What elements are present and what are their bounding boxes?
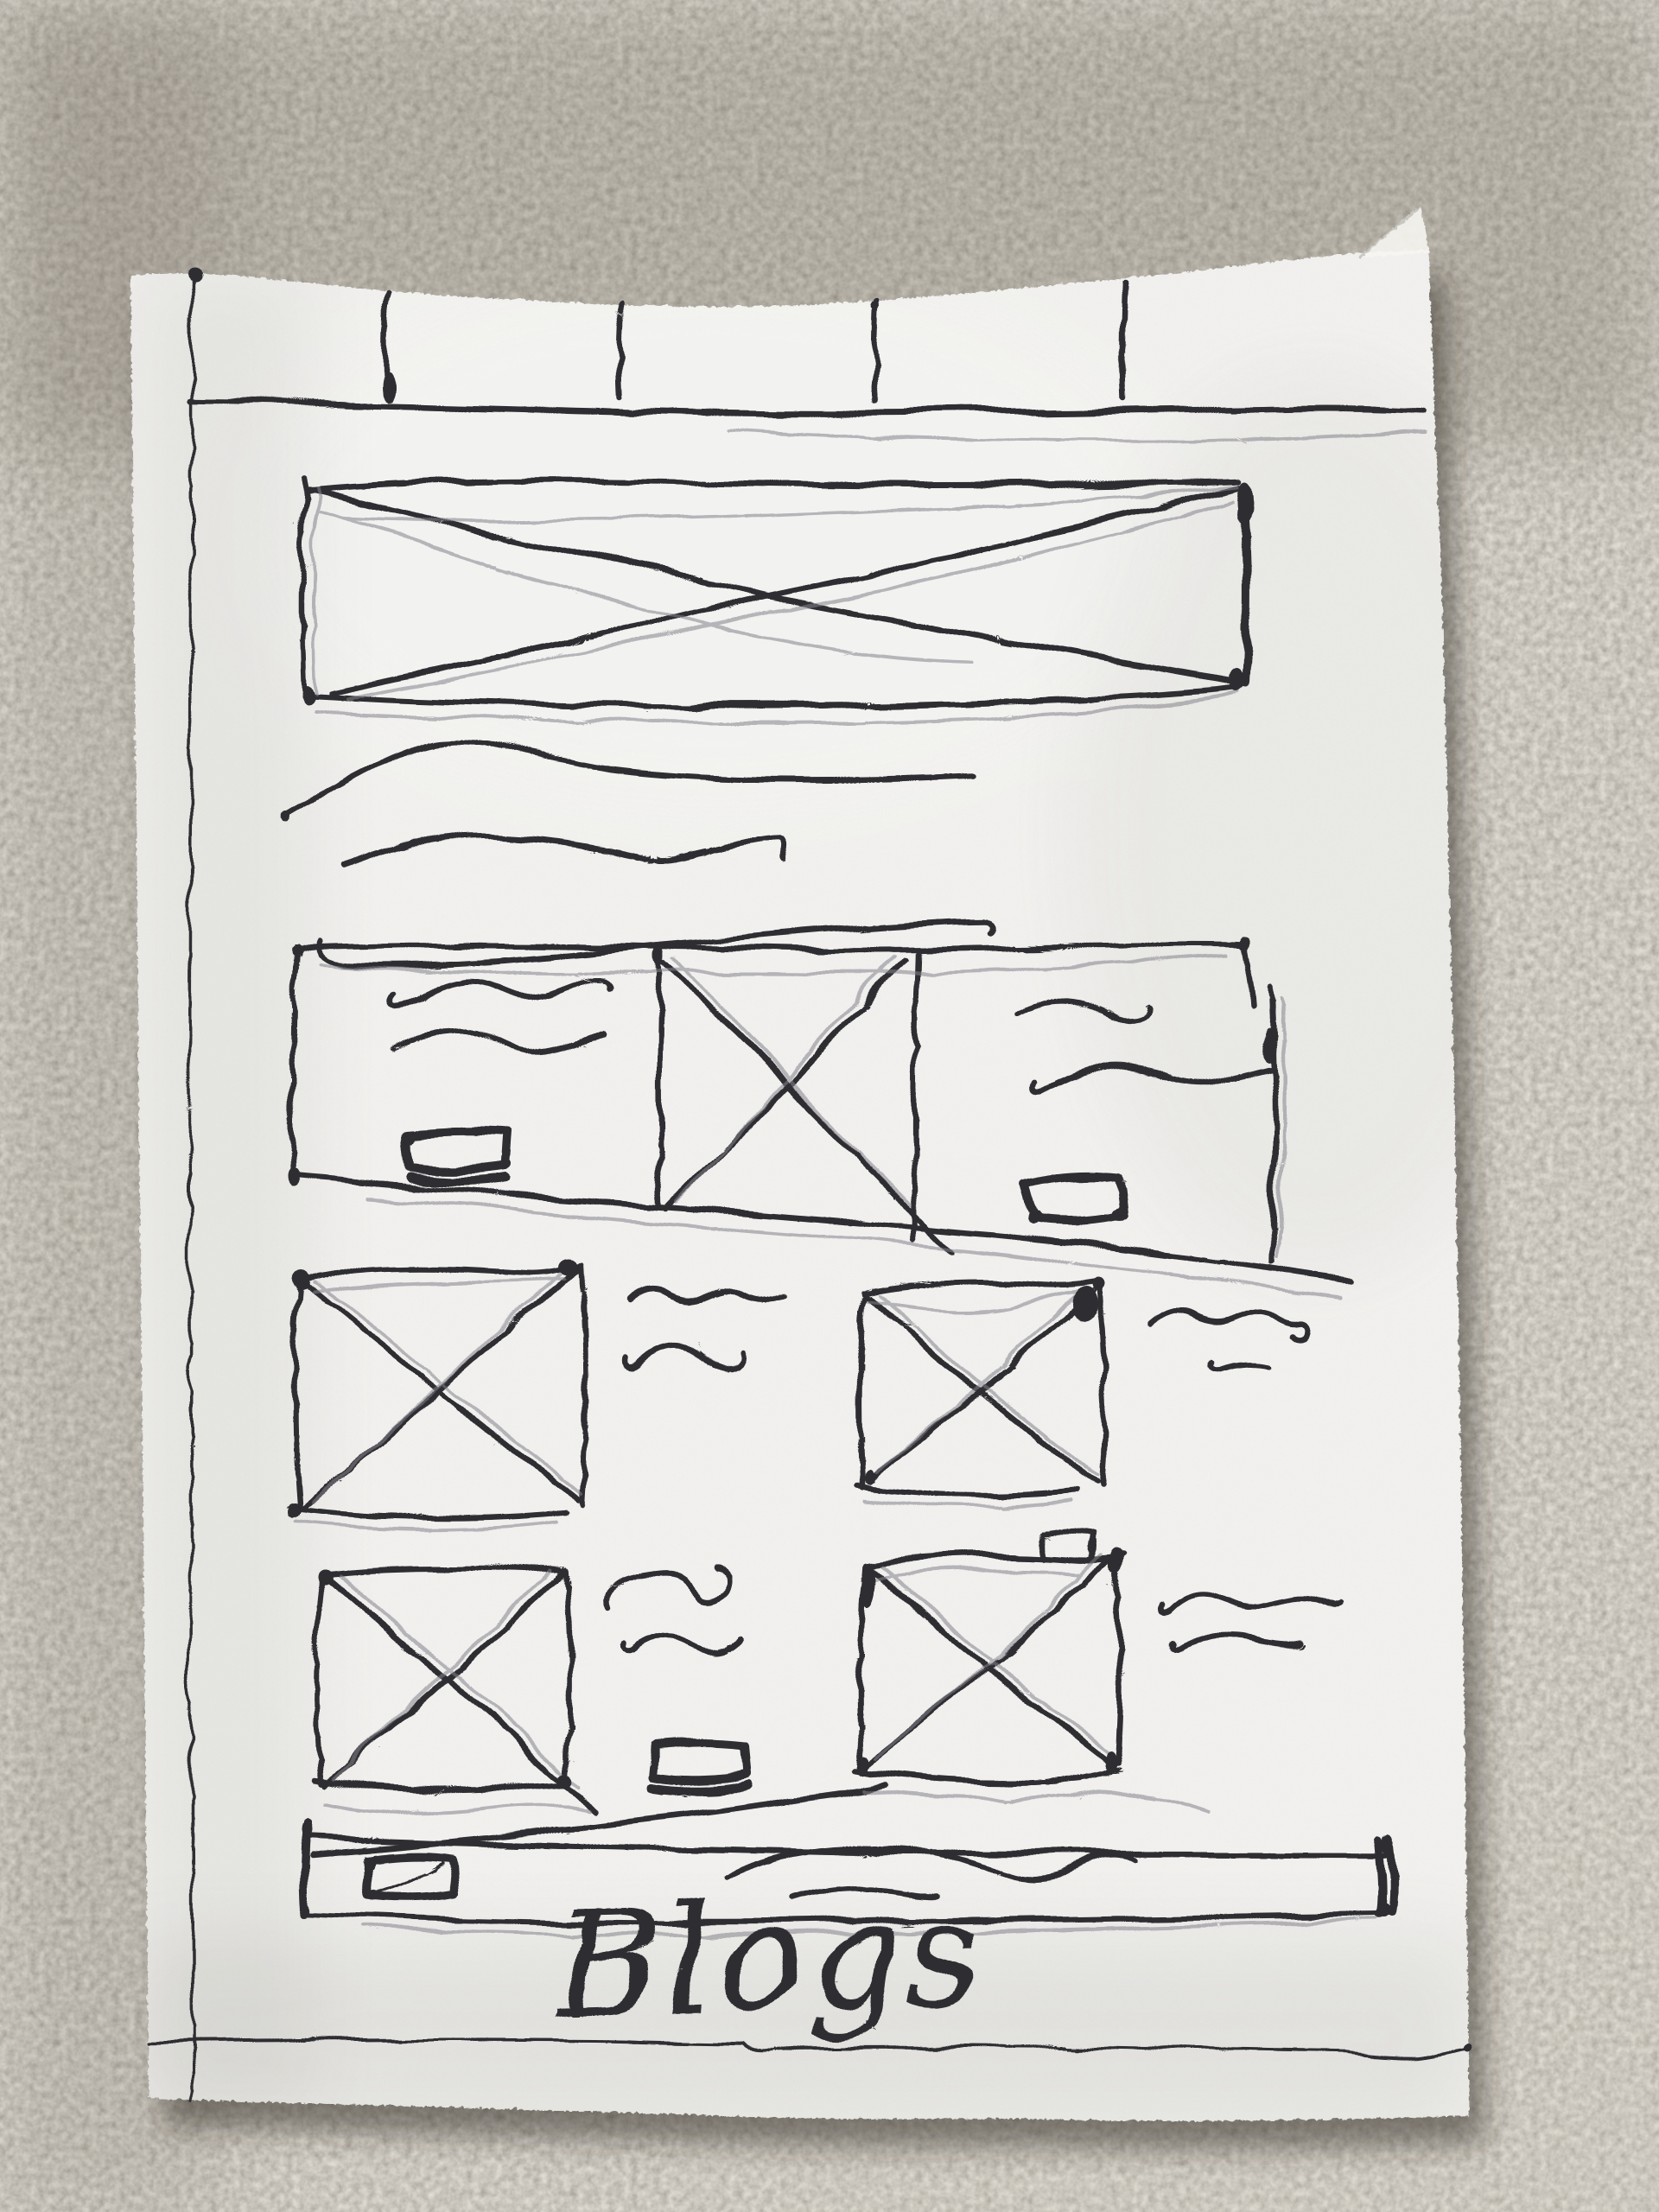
- sketch-caption-blogs: Blogs: [547, 1866, 984, 2048]
- paper-shade-left: [130, 259, 311, 2117]
- paper-sheen: [225, 242, 1192, 829]
- photo-of-wireframe-sketch: Blogs: [0, 0, 1659, 2212]
